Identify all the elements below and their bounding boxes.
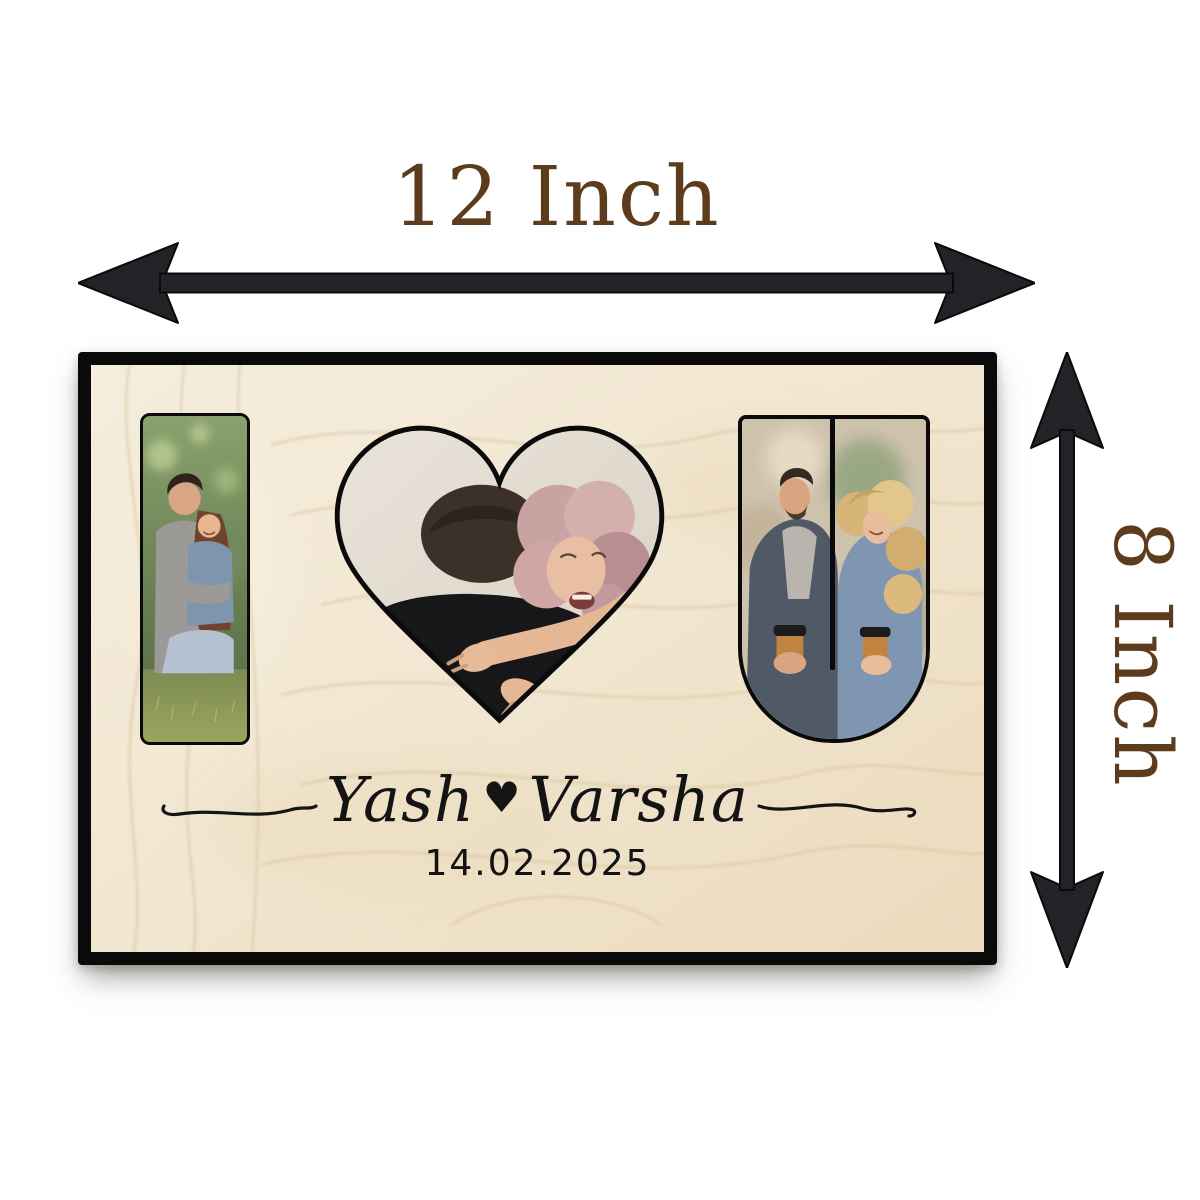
name-right: Varsha	[529, 769, 749, 831]
product-dimension-mockup: 12 Inch 8 Inch	[0, 0, 1200, 1200]
name-left: Yash	[326, 769, 475, 831]
letter-u-divider	[830, 415, 835, 670]
photo-heart	[313, 408, 686, 748]
name-flourish-left	[158, 782, 318, 826]
width-dimension-label: 12 Inch	[78, 150, 1035, 245]
height-arrow-icon	[1029, 352, 1105, 968]
engraved-names: Yash ♥ Varsha	[91, 761, 984, 847]
engraved-date: 14.02.2025	[91, 843, 984, 884]
height-dimension-label: 8 Inch	[1096, 520, 1189, 850]
name-flourish-right	[757, 782, 917, 826]
heart-separator-icon: ♥	[483, 777, 521, 819]
wooden-photo-plaque: Yash ♥ Varsha 14.02.2025	[78, 352, 997, 965]
width-arrow-icon	[78, 241, 1035, 325]
photo-letter-i	[140, 413, 250, 745]
